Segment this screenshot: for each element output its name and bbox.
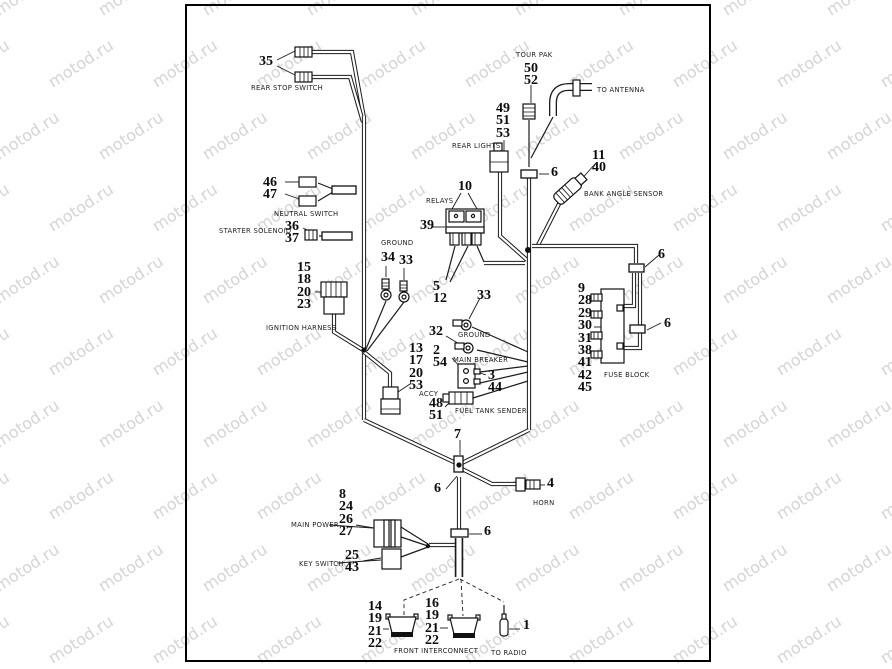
label-ignition-harness: IGNITION HARNESS: [266, 324, 336, 332]
label-ground-center: GROUND: [458, 331, 490, 339]
partnum-main-power: 8 24 26 27: [339, 489, 353, 539]
label-tour-pak: TOUR PAK: [516, 51, 553, 59]
partnum-rear-lights: 49 51 53: [496, 103, 510, 140]
partnum-ignition-harness: 15 18 20 23: [297, 262, 311, 312]
callout-layer: 3550 5249 51 53611 40103946 4736 3734331…: [0, 0, 892, 669]
partnum-conn-6-fuse: 6: [664, 318, 671, 330]
partnum-relay-block: 39: [420, 220, 434, 232]
partnum-tour-pak: 50 52: [524, 63, 538, 88]
partnum-ground-center-a: 33: [477, 290, 491, 302]
partnum-relay-connectors: 5 12: [433, 281, 447, 306]
partnum-main-breaker-conn: 3 44: [488, 370, 502, 395]
label-horn: HORN: [533, 499, 554, 507]
label-main-power: MAIN POWER: [291, 521, 339, 529]
partnum-accy: 13 17 20 53: [409, 343, 423, 393]
partnum-conn-6-junction: 6: [434, 483, 441, 495]
label-relays: RELAYS: [426, 197, 453, 205]
parts-diagram-page: motod.rumotod.rumotod.rumotod.rumotod.ru…: [0, 0, 892, 669]
partnum-horn: 4: [547, 478, 554, 490]
partnum-ground-left-a: 34: [381, 252, 395, 264]
label-starter-solenoid: STARTER SOLENOID: [219, 227, 291, 235]
partnum-main-breaker: 2 54: [433, 345, 447, 370]
label-fuel-tank-sender: FUEL TANK SENDER: [455, 407, 527, 415]
partnum-conn-6-trunk-top: 6: [551, 167, 558, 179]
partnum-fuel-tank-sender: 48 51: [429, 398, 443, 423]
label-rear-stop-switch: REAR STOP SWITCH: [251, 84, 323, 92]
partnum-bank-angle-sensor: 11 40: [592, 150, 606, 175]
partnum-front-interconnect-left: 14 19 21 22: [368, 601, 382, 651]
partnum-relays: 10: [458, 181, 472, 193]
partnum-key-switch: 25 43: [345, 550, 359, 575]
label-to-radio: TO RADIO: [491, 649, 527, 657]
label-key-switch: KEY SWITCH: [299, 560, 344, 568]
partnum-ground-left-b: 33: [399, 255, 413, 267]
label-main-breaker: MAIN BREAKER: [453, 356, 508, 364]
partnum-junction: 7: [454, 429, 461, 441]
partnum-ground-center-b: 32: [429, 326, 443, 338]
label-neutral-switch: NEUTRAL SWITCH: [274, 210, 338, 218]
partnum-fuse-block: 9 28 29 30 31 38 41 42 45: [578, 283, 592, 395]
label-front-interconnect: FRONT INTERCONNECT: [394, 647, 478, 655]
label-fuse-block: FUSE BLOCK: [604, 371, 649, 379]
label-rear-lights: REAR LIGHTS: [452, 142, 501, 150]
label-bank-angle-sensor: BANK ANGLE SENSOR: [584, 190, 663, 198]
partnum-conn-6-lower: 6: [484, 526, 491, 538]
partnum-front-interconnect-right: 16 19 21 22: [425, 598, 439, 648]
label-to-antenna: TO ANTENNA: [597, 86, 645, 94]
partnum-conn-6-right: 6: [658, 249, 665, 261]
partnum-rear-stop-switch: 35: [259, 56, 273, 68]
partnum-to-radio: 1: [523, 620, 530, 632]
label-ground-left: GROUND: [381, 239, 413, 247]
label-accy: ACCY: [419, 390, 438, 398]
partnum-neutral-switch: 46 47: [263, 177, 277, 202]
